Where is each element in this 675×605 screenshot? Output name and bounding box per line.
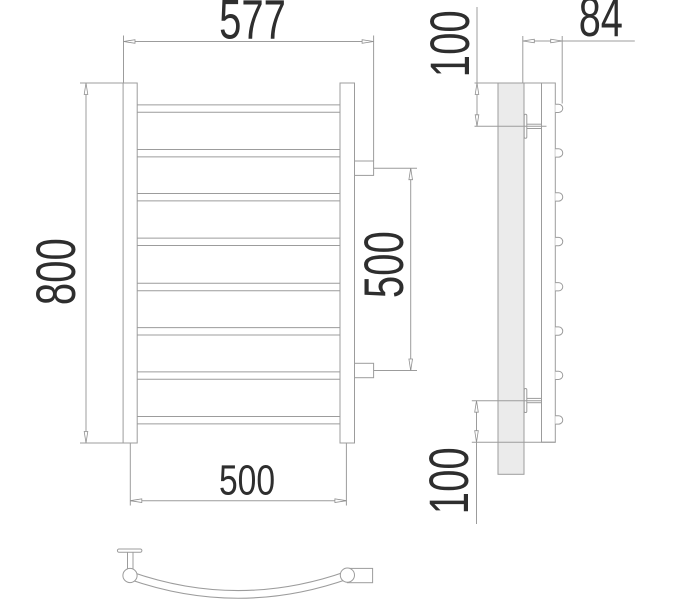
svg-text:100: 100 <box>418 447 480 514</box>
svg-text:577: 577 <box>219 0 286 51</box>
svg-text:500: 500 <box>219 456 275 503</box>
svg-text:500: 500 <box>353 231 415 298</box>
svg-text:100: 100 <box>419 10 481 77</box>
svg-text:84: 84 <box>579 0 623 48</box>
svg-text:800: 800 <box>25 238 87 305</box>
